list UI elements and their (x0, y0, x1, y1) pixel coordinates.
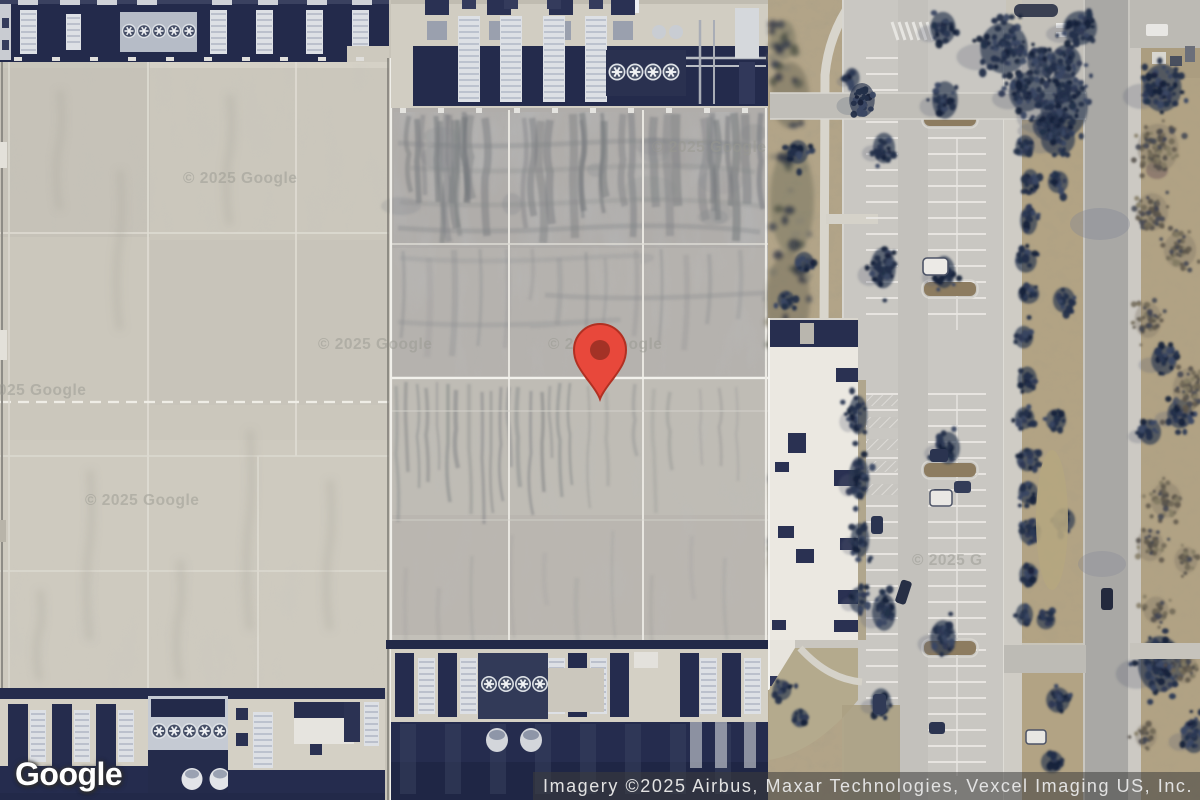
svg-text:© 2025 Google: © 2025 Google (652, 139, 766, 156)
svg-text:© 2025 Google: © 2025 Google (318, 336, 432, 353)
svg-text:© 2025 Google: © 2025 Google (85, 492, 199, 509)
svg-text:© 2025 G: © 2025 G (912, 552, 983, 569)
svg-text:© 2025 Google: © 2025 Google (0, 382, 86, 399)
svg-text:© 2025 Google: © 2025 Google (183, 170, 297, 187)
